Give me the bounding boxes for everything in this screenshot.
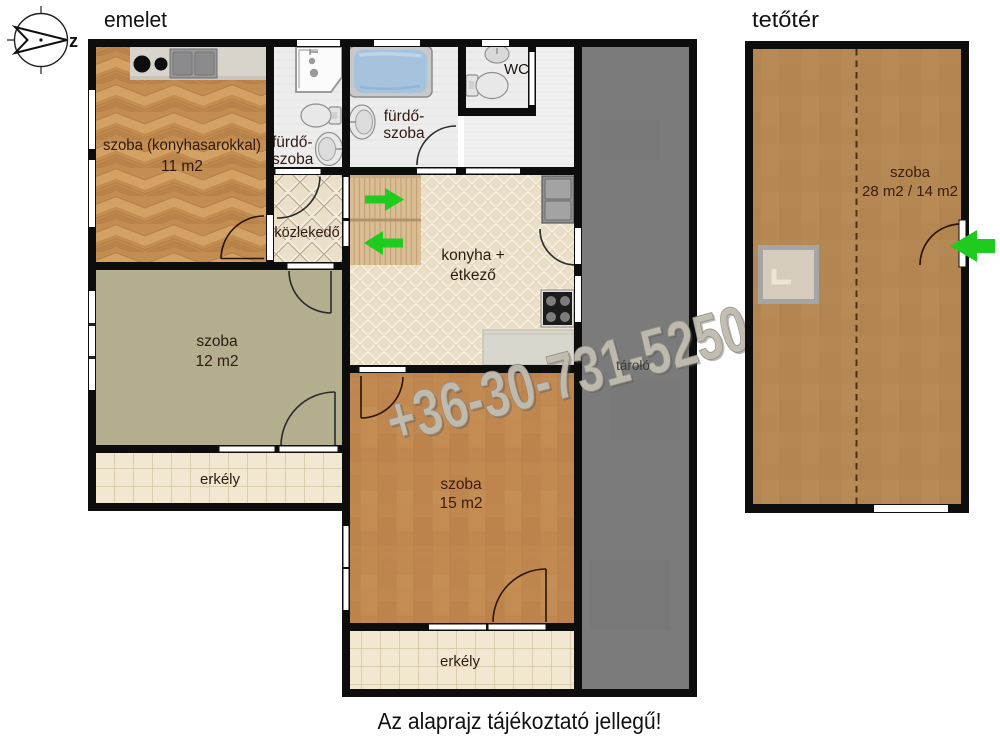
- svg-text:Az alaprajz tájékoztató jelleg: Az alaprajz tájékoztató jellegű!: [378, 708, 662, 734]
- svg-text:közlekedő: közlekedő: [274, 225, 339, 241]
- svg-text:szoba: szoba: [440, 476, 482, 493]
- svg-text:fürdő-: fürdő-: [272, 134, 313, 151]
- svg-text:fürdő-: fürdő-: [384, 108, 425, 125]
- svg-text:tetőtér: tetőtér: [752, 7, 819, 32]
- svg-text:28 m2 / 14 m2: 28 m2 / 14 m2: [862, 183, 958, 200]
- svg-text:11 m2: 11 m2: [161, 158, 203, 175]
- svg-text:szoba: szoba: [272, 151, 314, 168]
- svg-text:tároló: tároló: [616, 358, 650, 373]
- svg-text:szoba: szoba: [196, 333, 238, 350]
- svg-text:12 m2: 12 m2: [195, 353, 238, 370]
- svg-text:WC: WC: [504, 61, 529, 78]
- svg-text:erkély: erkély: [440, 653, 481, 670]
- svg-text:15 m2: 15 m2: [439, 495, 482, 512]
- svg-text:szoba: szoba: [383, 125, 425, 142]
- svg-text:z: z: [69, 31, 78, 51]
- svg-text:emelet: emelet: [104, 7, 167, 32]
- svg-text:erkély: erkély: [200, 471, 241, 488]
- svg-text:konyha +: konyha +: [441, 247, 504, 264]
- svg-text:szoba (konyhasarokkal): szoba (konyhasarokkal): [103, 137, 261, 154]
- svg-text:szoba: szoba: [890, 164, 931, 181]
- svg-text:étkező: étkező: [450, 267, 496, 284]
